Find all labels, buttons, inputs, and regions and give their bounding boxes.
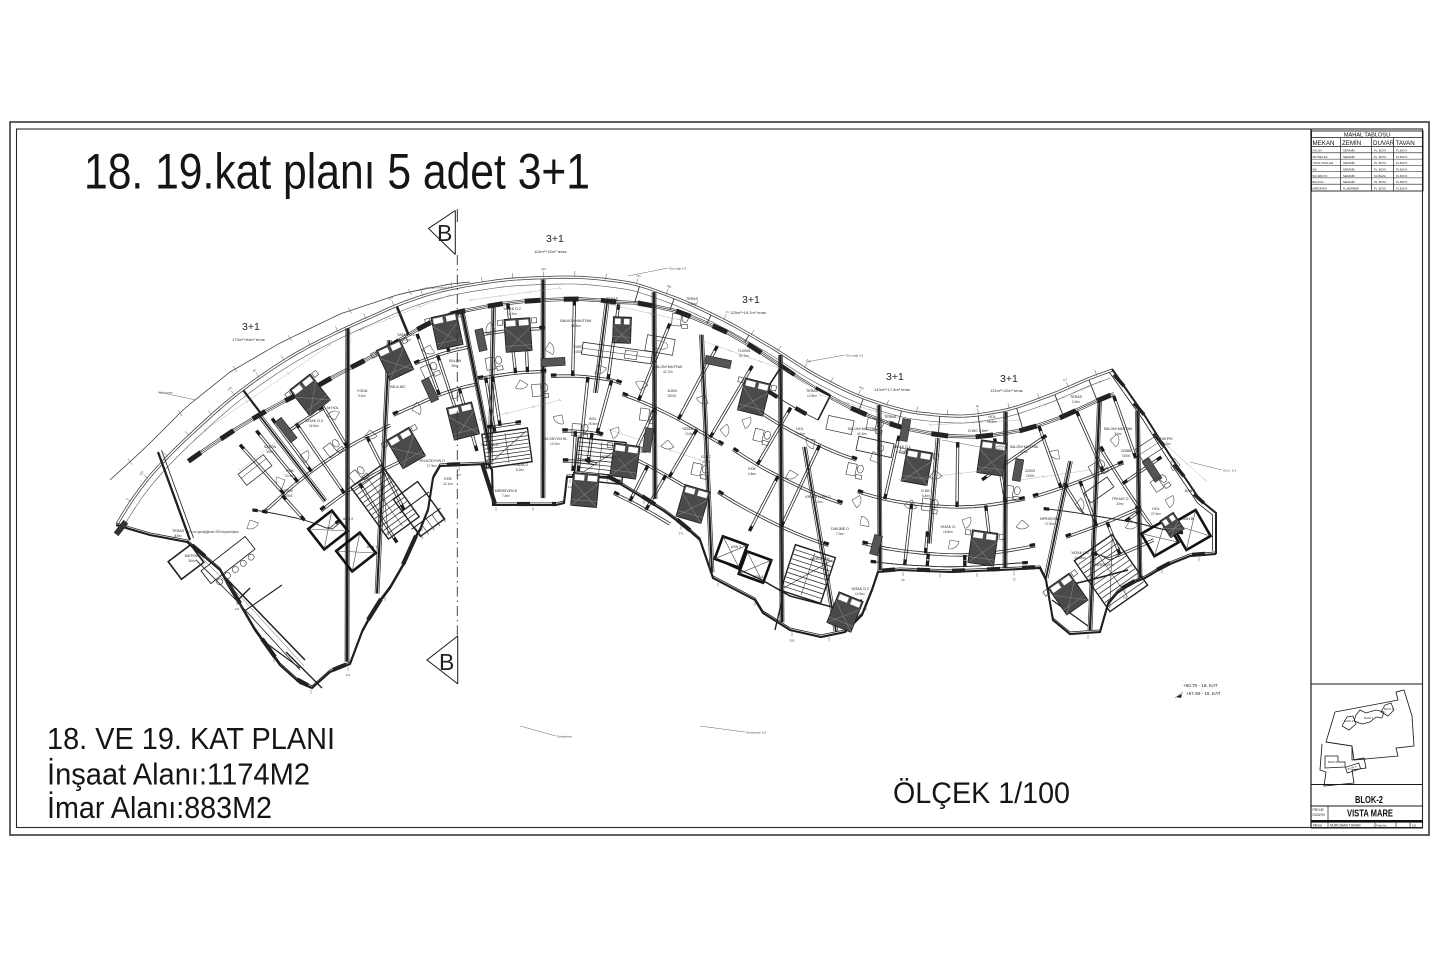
svg-text:HOL: HOL [1152,507,1159,511]
svg-text:SU BAZLI: SU BAZLI [1374,174,1386,178]
svg-text:4.5m²: 4.5m² [702,460,710,464]
svg-text:ROK: ROK [748,467,756,471]
svg-text:YATAK O.3: YATAK O.3 [305,419,323,423]
svg-text:WC: WC [1313,168,1318,172]
svg-text:ASN 7: ASN 7 [1185,489,1195,493]
svg-text:MUTFAK: MUTFAK [185,554,200,558]
svg-text:TERAS: TERAS [1070,395,1083,399]
svg-text:22003: 22003 [1025,469,1035,473]
svg-text:M.HOL: M.HOL [327,406,338,410]
svg-text:TAVAN: TAVAN [1396,140,1415,147]
svg-text:11.1m²: 11.1m² [443,482,453,486]
svg-text:34.2m²: 34.2m² [1161,442,1171,446]
svg-text:22002: 22002 [283,489,293,493]
svg-text:10m²: 10m² [1116,502,1123,506]
svg-text:5.8m²: 5.8m² [922,494,930,498]
svg-text:YATAK O.: YATAK O. [682,427,698,431]
svg-text:BLOK 2: BLOK 2 [1364,716,1374,720]
svg-text:+57.60 - 18. KAT: +57.60 - 18. KAT [1186,691,1221,696]
svg-text:YATAK O.2: YATAK O.2 [1071,551,1089,555]
svg-text:71603: 71603 [573,345,583,349]
svg-text:BLOK 3: BLOK 3 [1384,707,1394,711]
svg-text:BLOK 5: BLOK 5 [1328,760,1338,764]
svg-text:15.5m²: 15.5m² [987,420,997,424]
svg-text:PL.BOYA: PL.BOYA [1396,186,1408,190]
svg-text:ROK: ROK [444,477,452,481]
svg-text:SALON+MUTFAK: SALON+MUTFAK [848,427,877,431]
svg-text:52.7m²: 52.7m² [739,354,749,358]
svg-text:PL. BOYA: PL. BOYA [1374,155,1386,159]
svg-text:7.2m²: 7.2m² [688,302,696,306]
svg-text:PROJE: PROJE [1313,808,1325,812]
svg-text:125m²+19.2m² teras: 125m²+19.2m² teras [730,310,766,315]
svg-text:306: 306 [790,639,795,643]
svg-text:HOL: HOL [796,427,803,431]
svg-text:11004: 11004 [667,389,677,393]
svg-text:17.5m²: 17.5m² [427,464,437,468]
svg-text:G.WC: G.WC [701,455,711,459]
svg-text:Gün ışığı 6.3: Gün ışığı 6.3 [669,267,687,271]
svg-text:42.7m²: 42.7m² [663,370,673,374]
svg-text:35m²: 35m² [266,450,273,454]
svg-text:Gün ışığı 6.2: Gün ışığı 6.2 [986,447,1004,451]
svg-text:SKLSDYVN HL: SKLSDYVN HL [543,437,568,441]
svg-text:31m²: 31m² [1114,432,1121,436]
svg-text:7.5m²: 7.5m² [502,494,510,498]
svg-text:16.5m²: 16.5m² [309,424,319,428]
svg-text:ANTRE-HOL: ANTRE-HOL [1313,155,1329,159]
svg-text:39: 39 [901,578,905,582]
svg-text:BALKON+MUTFAK: BALKON+MUTFAK [560,319,592,323]
svg-text:MEKAN: MEKAN [1313,140,1335,147]
svg-text:3+1: 3+1 [886,371,904,383]
svg-text:14.98m²: 14.98m² [1074,556,1086,560]
svg-text:21902: 21902 [574,350,583,354]
svg-text:TUVNS: TUVNS [738,349,751,353]
svg-text:4.2m²: 4.2m² [1072,400,1080,404]
svg-text:7.2m²: 7.2m² [608,302,616,306]
svg-text:YATAK O.2: YATAK O.2 [851,587,869,591]
svg-text:PL. BOYA: PL. BOYA [1374,186,1386,190]
svg-text:DUKJBE O: DUKJBE O [831,527,849,531]
svg-text:141: 141 [235,607,240,611]
svg-text:YATAK O.2: YATAK O.2 [503,307,521,311]
svg-text:YATAK O.1: YATAK O.1 [397,333,415,337]
svg-text:3+1: 3+1 [242,321,260,333]
svg-text:14.3m²: 14.3m² [507,312,517,316]
svg-text:174: 174 [346,673,351,677]
svg-text:13.0m²: 13.0m² [897,450,907,454]
svg-text:MERDİVEN: MERDİVEN [1095,562,1114,567]
svg-text:İmar Alanı:883M2: İmar Alanı:883M2 [47,790,272,825]
svg-text:VISTA MARE: VISTA MARE [1347,808,1393,820]
svg-text:SALON+MUTFAK: SALON+MUTFAK [654,365,683,369]
svg-text:ASN 3: ASN 3 [731,545,741,549]
svg-text:3+1: 3+1 [742,294,760,306]
svg-text:BLOK 1: BLOK 1 [1344,719,1354,723]
svg-text:70 cm genişliğinde 250 büyümüş: 70 cm genişliğinde 250 büyümüştük [188,530,239,534]
svg-text:Pafta No: Pafta No [1377,824,1388,828]
svg-text:Y.ODA: Y.ODA [357,389,368,393]
svg-text:Çatı terası: Çatı terası [159,391,173,395]
svg-text:13.2m²: 13.2m² [813,500,823,504]
svg-text:YATAK O.1: YATAK O.1 [893,445,911,449]
svg-text:BOL: BOL [589,417,596,421]
svg-text:PL.BOYA: PL.BOYA [1396,161,1408,165]
svg-text:Gereksinim 6.2: Gereksinim 6.2 [746,731,767,735]
svg-text:Çatı terası 4.0: Çatı terası 4.0 [431,286,450,290]
svg-text:25.5m²: 25.5m² [588,422,598,426]
svg-text:NPRSDVNS: NPRSDVNS [1040,517,1061,521]
svg-text:27.5m²: 27.5m² [1151,512,1161,516]
svg-text:ÖLÇEK 1/100: ÖLÇEK 1/100 [893,777,1070,810]
svg-text:PL.BOYA: PL.BOYA [1396,155,1408,159]
svg-text:ASN 2: ASN 2 [343,517,353,521]
svg-text:TUKPIS: TUKPIS [1160,437,1174,441]
svg-text:YELKODYVN O: YELKODYVN O [419,459,445,463]
svg-text:7.0m²: 7.0m² [836,532,844,536]
svg-text:Mimar: Mimar [1313,824,1323,828]
svg-text:Gün ışığı 4.2: Gün ışığı 4.2 [846,354,864,358]
svg-text:5.2m²: 5.2m² [886,420,894,424]
svg-text:13.2m²: 13.2m² [795,432,805,436]
svg-text:17.5m²: 17.5m² [1045,522,1055,526]
svg-text:TIGAVA O: TIGAVA O [512,463,528,467]
svg-text:131m²+42m² teras: 131m²+42m² teras [990,388,1023,393]
svg-text:10.5m²: 10.5m² [285,474,295,478]
svg-text:Gün t. 6.3: Gün t. 6.3 [1223,469,1237,473]
svg-text:18. VE 19. KAT PLANI: 18. VE 19. KAT PLANI [47,721,335,756]
svg-text:38.3m²: 38.3m² [571,324,581,328]
svg-text:42.3m²: 42.3m² [857,432,867,436]
svg-text:BLOK-2: BLOK-2 [1355,794,1383,806]
svg-text:TERAS: TERAS [686,297,699,301]
svg-text:Gereksinim: Gereksinim [557,735,573,739]
svg-text:31m²: 31m² [1020,450,1027,454]
svg-text:SALON: SALON [1313,149,1322,153]
svg-text:ASN B: ASN B [1183,517,1194,521]
svg-text:DUVAR: DUVAR [1373,140,1395,147]
svg-text:TERAS: TERAS [606,297,619,301]
svg-text:G.WC: G.WC [921,489,931,493]
svg-text:13.2m²: 13.2m² [550,442,560,446]
svg-text:SALON: SALON [264,445,277,449]
svg-text:İnşaat Alanı:1174M2: İnşaat Alanı:1174M2 [47,757,310,792]
svg-text:B: B [439,649,454,675]
svg-text:240: 240 [568,485,573,489]
svg-text:MAHAL TABLOSU: MAHAL TABLOSU [1344,132,1390,138]
svg-text:BD.A.WC: BD.A.WC [390,385,406,389]
svg-text:5.2m²: 5.2m² [516,468,524,472]
svg-text:ASN 1: ASN 1 [367,545,377,549]
svg-text:MERDİVEN: MERDİVEN [601,454,620,459]
svg-text:PL.BOYA: PL.BOYA [1396,174,1408,178]
svg-text:PL.BOYA: PL.BOYA [1396,149,1408,153]
svg-text:MERDİVEN: MERDİVEN [811,556,830,561]
svg-text:B: B [437,220,452,246]
svg-text:YATAK O.: YATAK O. [940,525,956,529]
svg-text:143m²+17.6m² teras: 143m²+17.6m² teras [874,387,910,392]
svg-text:1/8: 1/8 [1412,824,1416,828]
svg-text:NURCİHAN TURAN: NURCİHAN TURAN [1330,823,1361,828]
svg-text:105: 105 [1123,595,1128,599]
svg-text:246: 246 [541,267,546,271]
svg-text:BALKON: BALKON [1313,180,1324,184]
svg-text:15.3m²: 15.3m² [401,338,411,342]
svg-text:SALON+MUTFAK: SALON+MUTFAK [1010,445,1039,449]
svg-text:ZEMİN: ZEMİN [1342,140,1361,147]
svg-text:SALON: SALON [449,359,462,363]
svg-text:SAHANLIK: SAHANLIK [481,443,499,447]
svg-text:HOL: HOL [988,415,995,419]
svg-text:ROK: ROK [286,469,294,473]
svg-text:70903: 70903 [284,494,293,498]
svg-text:173m²+84m² teras: 173m²+84m² teras [232,337,265,342]
svg-text:TERAS: TERAS [884,415,897,419]
svg-text:PL.BOYA: PL.BOYA [1396,180,1408,184]
svg-text:3+1: 3+1 [1000,373,1018,385]
svg-text:KRYSTYLER O: KRYSTYLER O [805,495,830,499]
svg-text:MERDİVEN D: MERDİVEN D [495,488,518,493]
svg-text:YATAK ODALARI: YATAK ODALARI [1313,161,1334,165]
svg-text:22985: 22985 [1121,449,1131,453]
svg-text:PL. BOYA: PL. BOYA [1374,168,1386,172]
svg-text:9.2m²: 9.2m² [358,394,366,398]
svg-text:13.5m²: 13.5m² [685,432,695,436]
svg-text:SALON+MUTFAK: SALON+MUTFAK [1104,427,1133,431]
svg-text:14.9m²: 14.9m² [855,592,865,596]
svg-text:DİZAYN: DİZAYN [1313,812,1326,817]
svg-text:WC-BANYO: WC-BANYO [1313,174,1328,178]
svg-text:4.8m²: 4.8m² [748,472,756,476]
svg-text:TERAS: TERAS [172,529,185,533]
svg-text:74000: 74000 [1026,474,1035,478]
svg-text:113m²+32m² teras: 113m²+32m² teras [534,249,567,254]
svg-text:TERAS: TERAS [806,389,819,393]
svg-text:TPKIUS O: TPKIUS O [1112,497,1129,501]
svg-text:74000: 74000 [1122,454,1131,458]
svg-text:83m²: 83m² [174,534,181,538]
svg-text:ASN 4: ASN 4 [753,575,763,579]
svg-text:G.WC 5.8m²: G.WC 5.8m² [968,429,989,433]
svg-text:273: 273 [679,532,684,536]
svg-text:PL. BOYA: PL. BOYA [1374,161,1386,165]
svg-text:36m²: 36m² [188,559,195,563]
svg-text:PL. BOYA: PL. BOYA [1374,180,1386,184]
svg-text:PL.MERMER: PL.MERMER [1343,186,1359,190]
svg-text:PL. BOYA: PL. BOYA [1374,149,1386,153]
svg-text:15.8m²: 15.8m² [943,530,953,534]
svg-text:+60.70 - 19. KAT: +60.70 - 19. KAT [1183,683,1218,688]
svg-text:18. 19.kat planı 5 adet 3+1: 18. 19.kat planı 5 adet 3+1 [84,143,590,200]
svg-text:PL.BOYA: PL.BOYA [1396,168,1408,172]
svg-text:12.8m²: 12.8m² [807,394,817,398]
svg-text:3+1: 3+1 [546,233,564,245]
svg-text:72: 72 [1012,577,1016,581]
svg-text:20001: 20001 [668,394,677,398]
